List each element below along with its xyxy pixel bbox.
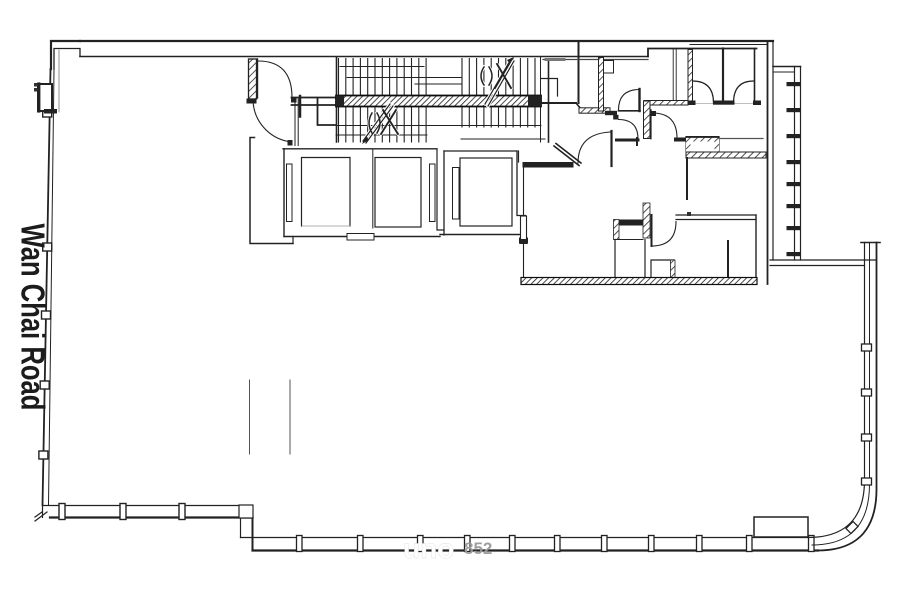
- svg-text:852: 852: [464, 539, 492, 558]
- svg-text:Wan Chai Road: Wan Chai Road: [14, 224, 51, 411]
- svg-text:uno: uno: [403, 533, 454, 564]
